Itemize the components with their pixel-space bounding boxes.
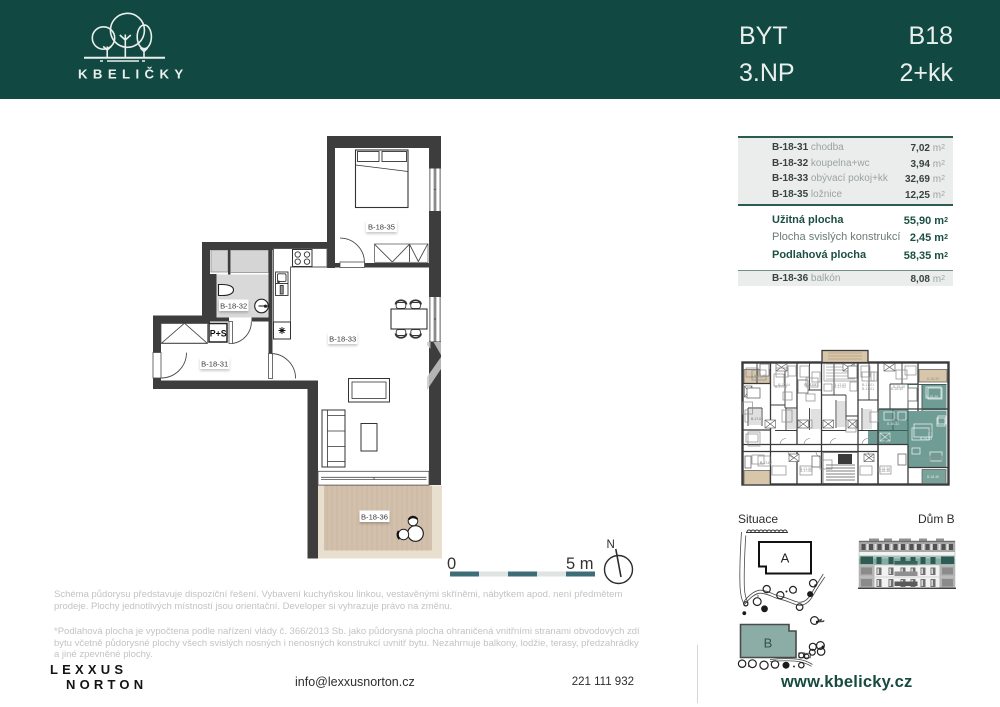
svg-text:B-17-06: B-17-06	[751, 417, 763, 421]
svg-text:B-18-39: B-18-39	[927, 377, 939, 381]
svg-text:B-18-37: B-18-37	[914, 457, 926, 461]
svg-text:B-17-02: B-17-02	[834, 383, 846, 387]
svg-text:B: B	[764, 636, 773, 651]
svg-text:B-18-38: B-18-38	[878, 467, 890, 471]
svg-text:B-17-01: B-17-01	[862, 387, 874, 391]
svg-text:B-17-03: B-17-03	[806, 383, 818, 387]
svg-text:0: 0	[447, 555, 456, 573]
svg-text:P+S: P+S	[210, 329, 227, 339]
svg-text:B-18-36: B-18-36	[927, 475, 939, 479]
svg-text:B-18-33: B-18-33	[329, 334, 356, 343]
svg-text:B-17-04: B-17-04	[778, 383, 790, 387]
svg-text:B-17-05: B-17-05	[754, 374, 766, 378]
svg-text:B-18-35: B-18-35	[368, 222, 395, 231]
svg-text:B-18-33: B-18-33	[920, 437, 932, 441]
svg-text:B-18-32: B-18-32	[220, 301, 247, 310]
svg-text:B-17-07: B-17-07	[760, 461, 772, 465]
svg-text:B-18-35: B-18-35	[890, 419, 902, 423]
svg-text:B-17-01: B-17-01	[862, 383, 874, 387]
svg-text:N: N	[607, 539, 615, 551]
svg-text:5 m: 5 m	[566, 555, 594, 573]
svg-text:B-18-36: B-18-36	[361, 512, 388, 521]
svg-text:B-17-08: B-17-08	[800, 467, 812, 471]
svg-text:B-18-33: B-18-33	[922, 429, 934, 433]
svg-text:B-18-40: B-18-40	[893, 385, 905, 389]
svg-text:B-18-31: B-18-31	[201, 359, 228, 368]
svg-text:A: A	[781, 551, 790, 566]
